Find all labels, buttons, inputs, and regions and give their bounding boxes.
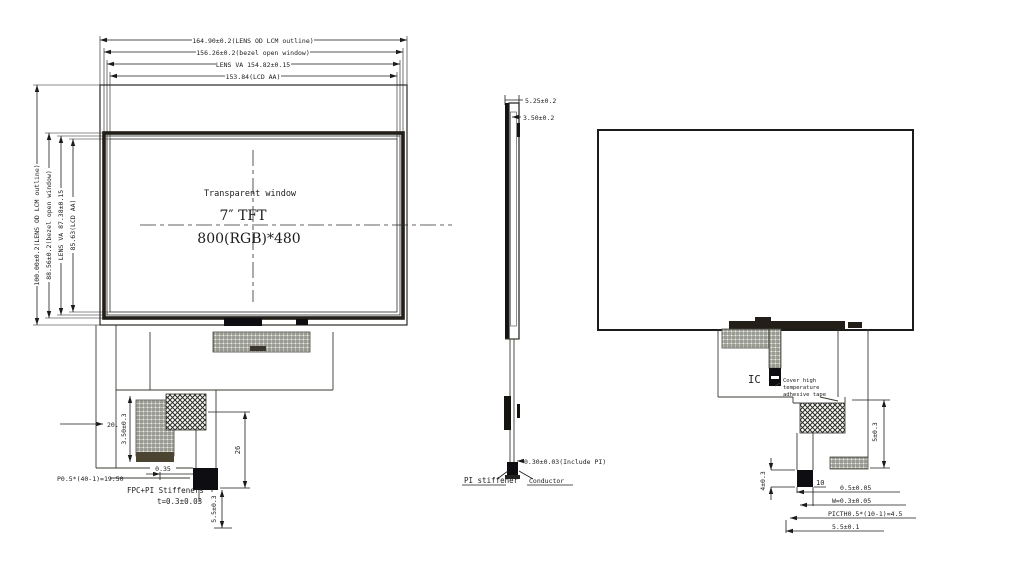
dim-lcd-aa-width: 153.84(LCD AA) — [226, 73, 281, 81]
dim-lens-od-width: 164.90±0.2(LENS OD LCM outline) — [192, 37, 313, 45]
resolution-label: 800(RGB)*480 — [197, 231, 300, 247]
pin-pitch-label: P0.5*(40-1)=19.50 — [57, 475, 124, 483]
dim-finger-length: 5.5±0.1 — [832, 523, 859, 531]
ic-chip-notch — [771, 376, 779, 379]
adhesive-tape-bar — [729, 321, 845, 329]
conductor-label: Conductor — [529, 477, 564, 485]
dim-lens-va-height: LENS VA 87.38±0.15 — [57, 190, 65, 261]
transparent-window-label: Transparent window — [204, 189, 297, 199]
back-connector — [797, 470, 813, 487]
front-fpc — [96, 325, 333, 502]
drawing-page: 164.90±0.2(LENS OD LCM outline) 156.26±0… — [0, 0, 1027, 583]
back-components — [722, 317, 868, 487]
stiffener-label-line2: t=0.3±0.03 — [157, 497, 202, 506]
fpc-stiffener-hatch — [166, 394, 206, 430]
dim-lens-va-width: LENS VA 154.82±0.15 — [216, 61, 290, 69]
front-extension-lines — [33, 36, 407, 325]
tape-note-line1: Cover high — [783, 378, 816, 384]
lcd-module-drawing: 164.90±0.2(LENS OD LCM outline) 156.26±0… — [0, 0, 1027, 583]
front-dimension-lines — [37, 40, 407, 528]
dim-bezel-window-height: 88.56±0.2(bezel open window) — [45, 170, 53, 280]
tape-note-line2: temperature — [783, 385, 819, 391]
back-stiffener-hatch — [800, 403, 845, 433]
front-arrowheads — [35, 38, 407, 528]
back-contact-grid — [830, 457, 868, 469]
back-gold-strip — [769, 329, 781, 368]
lens-va-rect — [107, 136, 400, 315]
back-labels: IC Cover high temperature adhesive tape … — [748, 374, 902, 531]
dim-lens-od-height: 100.00±0.2(LENS OD LCM outline) — [33, 164, 41, 285]
dim-bezel-window-width: 156.26±0.2(bezel open window) — [196, 49, 310, 57]
dim-5-back: 5±0.3 — [871, 422, 879, 442]
back-panel-outline — [598, 130, 913, 330]
adhesive-tape-bar-2 — [848, 322, 862, 328]
side-labels: 5.25±0.2 3.50±0.2 0.30±0.03(Include PI) … — [464, 97, 606, 485]
dim-035: 0.35 — [155, 465, 171, 473]
back-fpc-outline — [718, 329, 868, 470]
back-view: IC Cover high temperature adhesive tape … — [598, 130, 916, 533]
fpc-contact-bar — [136, 452, 174, 462]
bottom-tab — [224, 318, 262, 326]
side-body-gap — [511, 112, 517, 326]
pin-count-label: 10 — [816, 479, 824, 487]
dim-fpc-thickness: 0.30±0.03(Include PI) — [524, 458, 606, 466]
lens-outline-rect — [100, 85, 407, 325]
front-view: 164.90±0.2(LENS OD LCM outline) 156.26±0… — [32, 35, 452, 528]
ic-label: IC — [748, 374, 761, 386]
bottom-mark — [296, 319, 308, 325]
stiffener-label-line1: FPC+PI Stiffeners — [127, 486, 204, 495]
dim-finger-width: W=0.3±0.05 — [832, 497, 871, 505]
dim-26: 26 — [234, 446, 242, 454]
dim-lcd-aa-height: 85.63(LCD AA) — [69, 200, 77, 251]
back-gold-fingers — [722, 329, 776, 348]
dim-55-front: 5.5±0.3 — [210, 495, 218, 522]
side-view: 5.25±0.2 3.50±0.2 0.30±0.03(Include PI) … — [462, 95, 606, 485]
side-stiffener — [504, 396, 511, 430]
dim-finger-offset: 0.5±0.05 — [840, 484, 871, 492]
dim-finger-pitch: PICTH0.5*(10-1)=4.5 — [828, 510, 902, 518]
dim-350: 3.50±0.3 — [120, 413, 128, 444]
dim-total-thickness: 5.25±0.2 — [525, 97, 556, 105]
side-profile — [504, 103, 520, 479]
tape-note-line3: adhesive tape — [783, 392, 826, 398]
side-connector — [507, 462, 518, 476]
gold-strip-mark — [250, 346, 266, 351]
dim-module-thickness: 3.50±0.2 — [523, 114, 554, 122]
dim-4-back: 4±0.3 — [759, 471, 767, 491]
side-step-top — [517, 123, 520, 137]
front-panel-outline — [100, 85, 452, 326]
side-dimension-lines — [462, 95, 573, 485]
adhesive-tape-bar-3 — [755, 317, 771, 322]
lcd-aa-rect — [110, 139, 397, 312]
side-step-bottom — [517, 404, 520, 418]
panel-size-label: 7″ TFT — [220, 208, 268, 224]
pi-stiffener-label: PI stiffener — [464, 476, 519, 485]
bezel-window-rect — [104, 133, 403, 318]
lens-front-edge — [505, 103, 509, 339]
